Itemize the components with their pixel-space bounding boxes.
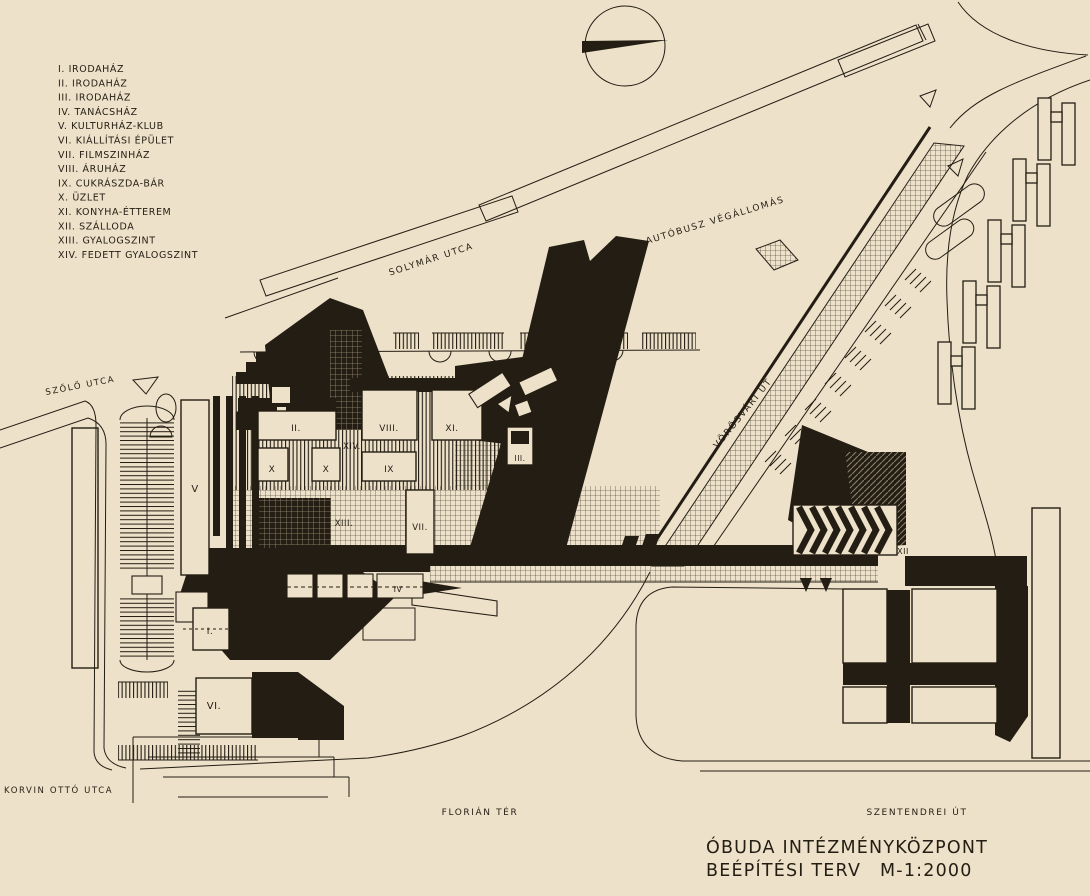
legend-item: XIII. GYALOGSZINT — [58, 236, 156, 247]
legend-item: IV. TANÁCSHÁZ — [58, 106, 138, 118]
label-building-IV: IV — [394, 585, 403, 594]
legend-item: II. IRODAHÁZ — [58, 77, 128, 89]
street-label-florian: FLORIÁN TÉR — [442, 806, 519, 818]
label-building-VI: VI. — [207, 701, 221, 712]
legend-item: VII. FILMSZINHÁZ — [58, 149, 150, 161]
legend-item: VI. KIÁLLÍTÁSI ÉPÜLET — [58, 135, 174, 147]
label-building-XIV: XIV. — [343, 442, 361, 452]
legend-item: IX. CUKRÁSZDA-BÁR — [58, 177, 165, 189]
site-plan-sheet: SOLYMÁR UTCA AUTÓBUSZ VÉGÁLLOMÁS VÖRÖSVÁ… — [0, 0, 1090, 896]
plan-scale: M-1:2000 — [880, 861, 973, 881]
label-building-XIII: XIII. — [335, 519, 354, 529]
legend-item: VIII. ÁRUHÁZ — [58, 163, 126, 175]
label-building-IX: IX — [384, 465, 394, 475]
label-building-V: V — [191, 484, 198, 495]
label-building-II: II. — [291, 424, 301, 434]
legend-item: XII. SZÁLLODA — [58, 220, 134, 232]
plan-title: ÓBUDA INTÉZMÉNYKÖZPONT — [706, 836, 988, 858]
legend-item: V. KULTURHÁZ-KLUB — [58, 120, 164, 132]
label-building-III: III. — [514, 454, 525, 463]
label-building-XII-plaza: XII — [554, 517, 566, 526]
legend-item: XIV. FEDETT GYALOGSZINT — [58, 250, 198, 261]
site-plan-drawing: SOLYMÁR UTCA AUTÓBUSZ VÉGÁLLOMÁS VÖRÖSVÁ… — [0, 0, 1090, 896]
plan-subtitle: BEÉPÍTÉSI TERV — [706, 859, 861, 881]
label-building-VIII: VIII. — [379, 424, 398, 434]
street-label-szentendrei: SZENTENDREI ÚT — [866, 806, 967, 818]
street-label-korvin: KORVIN OTTÓ UTCA — [4, 784, 113, 796]
legend-item: I. IRODAHÁZ — [58, 63, 124, 75]
label-building-I: I. — [207, 627, 214, 637]
label-building-VII: VII. — [412, 523, 428, 533]
label-building-X-2: X — [323, 465, 330, 475]
legend-item: III. IRODAHÁZ — [58, 92, 131, 104]
legend-item: X. ÜZLET — [58, 193, 106, 204]
label-building-XII-hotel: XII — [897, 547, 909, 556]
label-building-X-1: X — [269, 465, 276, 475]
legend-item: XI. KONYHA-ÉTTEREM — [58, 206, 171, 218]
label-building-XI: XI. — [445, 424, 458, 434]
